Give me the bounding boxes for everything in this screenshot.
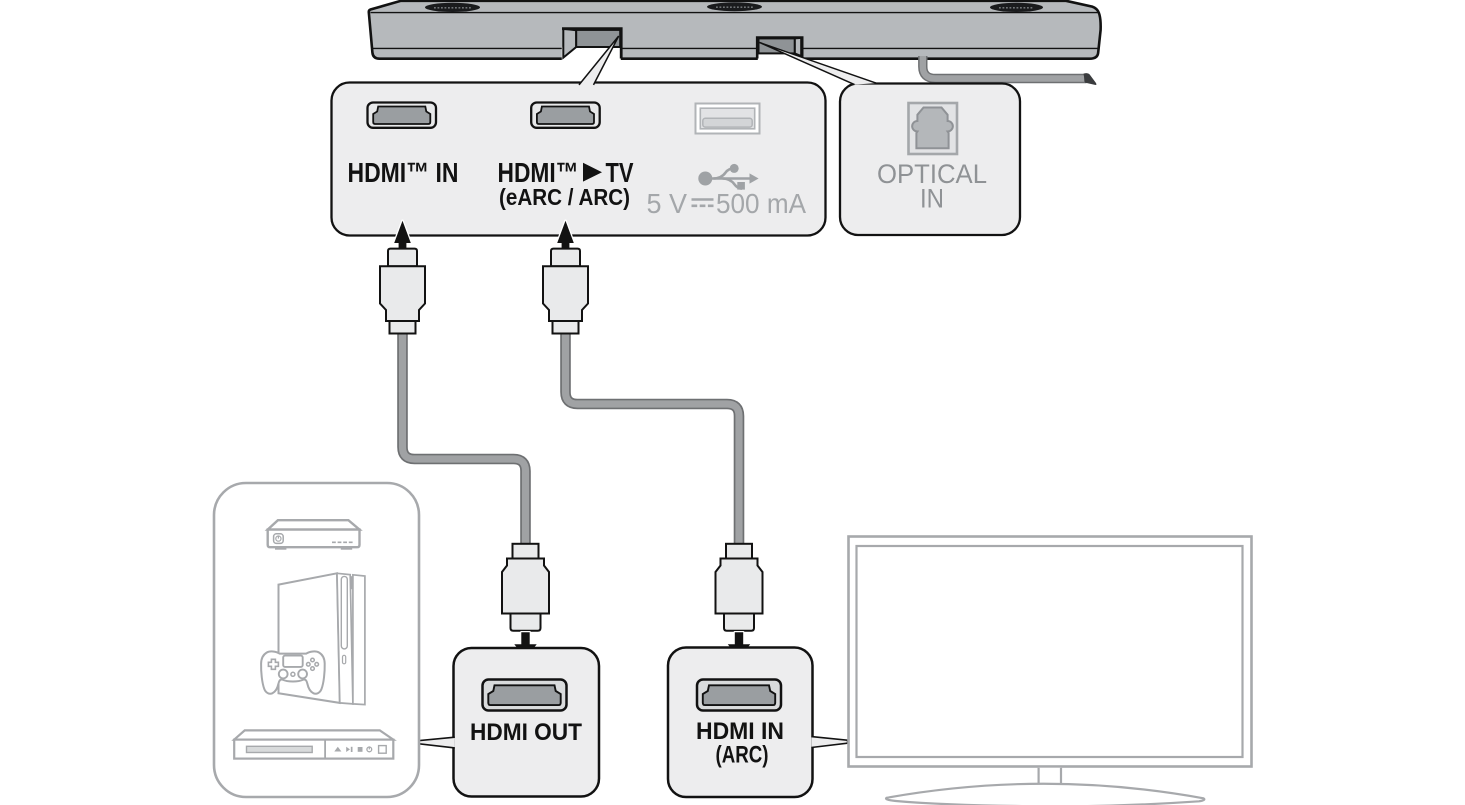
svg-text:(eARC / ARC): (eARC / ARC) bbox=[499, 184, 630, 210]
svg-text:IN: IN bbox=[920, 184, 944, 214]
svg-text:HDMI OUT: HDMI OUT bbox=[470, 719, 582, 746]
svg-text:500 mA: 500 mA bbox=[716, 188, 806, 219]
svg-text:(ARC): (ARC) bbox=[716, 742, 769, 769]
svg-text:5 V: 5 V bbox=[647, 188, 688, 219]
svg-text:HDMI™ IN: HDMI™ IN bbox=[348, 157, 459, 188]
